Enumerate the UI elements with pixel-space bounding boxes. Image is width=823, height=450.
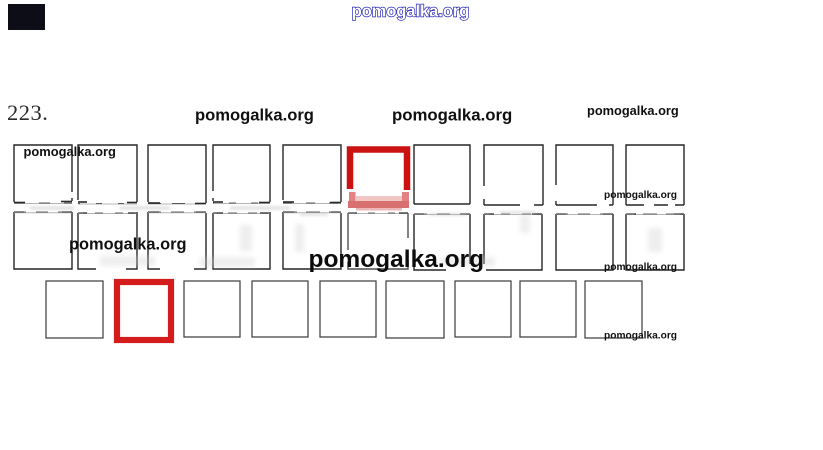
svg-text:pomogalka.org: pomogalka.org [24, 144, 117, 159]
svg-text:pomogalka.org: pomogalka.org [392, 106, 512, 125]
svg-text:223.: 223. [7, 100, 48, 125]
svg-text:pomogalka.org: pomogalka.org [309, 246, 485, 273]
svg-text:pomogalka.org: pomogalka.org [604, 190, 677, 201]
svg-text:pomogalka.org: pomogalka.org [195, 106, 314, 125]
svg-text:pomogalka.org: pomogalka.org [352, 2, 469, 20]
svg-text:pomogalka.org: pomogalka.org [604, 262, 677, 273]
svg-text:pomogalka.org: pomogalka.org [69, 236, 186, 254]
svg-text:pomogalka.org: pomogalka.org [604, 330, 677, 341]
svg-text:pomogalka.org: pomogalka.org [587, 103, 679, 118]
